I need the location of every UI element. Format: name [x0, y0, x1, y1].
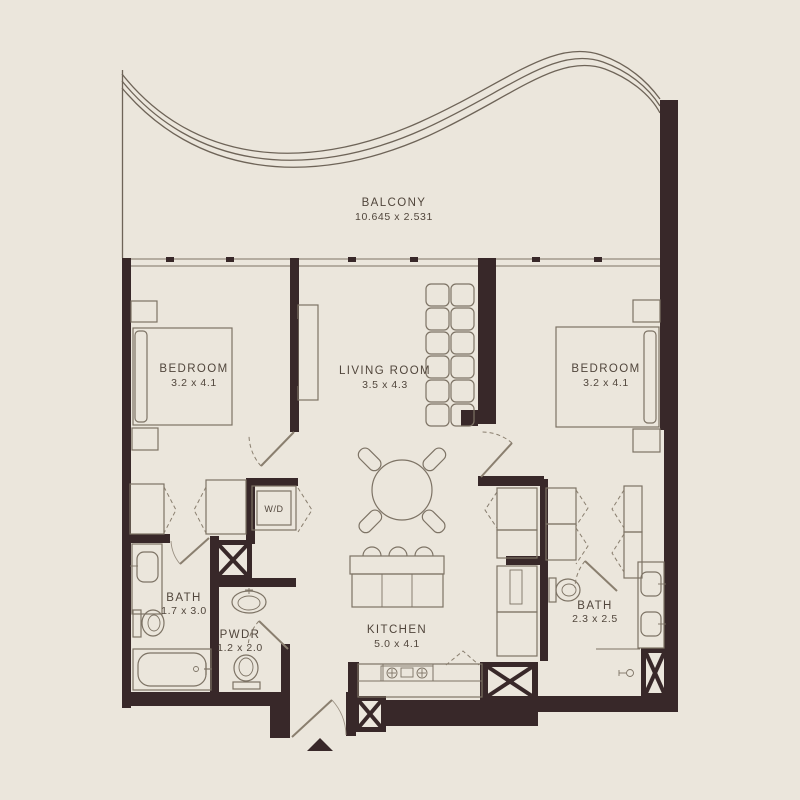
label-powder-room: PWDR 1.2 x 2.0 [217, 629, 263, 654]
wall-bath2-top [506, 556, 548, 565]
wall-entry-left-jamb [270, 692, 290, 738]
svg-text:1.2 x 2.0: 1.2 x 2.0 [217, 642, 263, 654]
svg-text:10.645 x 2.531: 10.645 x 2.531 [355, 211, 433, 223]
shaft-column-corridor1 [214, 540, 252, 580]
svg-text:1.7 x 3.0: 1.7 x 3.0 [161, 605, 207, 617]
svg-text:LIVING ROOM: LIVING ROOM [339, 365, 431, 377]
wall-kitchen-stub [348, 662, 359, 700]
svg-text:5.0 x 4.1: 5.0 x 4.1 [374, 638, 420, 650]
floor-plan-page: W/D [0, 0, 800, 800]
svg-text:3.5 x 4.3: 3.5 x 4.3 [362, 379, 408, 391]
svg-text:KITCHEN: KITCHEN [367, 624, 427, 636]
svg-text:BEDROOM: BEDROOM [571, 363, 640, 375]
label-bath-left: BATH 1.7 x 3.0 [161, 592, 207, 617]
svg-text:BATH: BATH [166, 592, 201, 604]
label-bath-right: BATH 2.3 x 2.5 [572, 600, 618, 625]
shaft-column-kitchen [488, 667, 532, 696]
shaft-column-bath2 [641, 648, 669, 698]
wall-pillar-flare [461, 410, 478, 426]
svg-text:3.2 x 4.1: 3.2 x 4.1 [583, 377, 629, 389]
wall-pwdr-right [281, 644, 290, 692]
svg-text:2.3 x 2.5: 2.3 x 2.5 [572, 613, 618, 625]
shaft-column-entry [354, 696, 386, 732]
svg-text:BATH: BATH [577, 600, 612, 612]
wall-right-upper [660, 100, 678, 430]
svg-text:PWDR: PWDR [220, 629, 261, 641]
wall-corridor2-vertical [540, 479, 548, 661]
plan-background [0, 0, 800, 800]
washer-dryer-label: W/D [264, 504, 283, 514]
wall-bedroom2-corridor [478, 476, 544, 486]
tv-screen [293, 319, 298, 386]
wall-bottom-right [536, 696, 678, 712]
floor-plan: W/D [0, 0, 800, 800]
wall-left [122, 258, 131, 708]
svg-text:BEDROOM: BEDROOM [159, 363, 228, 375]
dining-table-top [372, 460, 432, 520]
wall-wd-left [246, 478, 255, 544]
svg-text:BALCONY: BALCONY [362, 197, 427, 209]
wall-bath1-top [126, 534, 170, 543]
wall-wd-top [246, 478, 298, 486]
svg-text:3.2 x 4.1: 3.2 x 4.1 [171, 377, 217, 389]
wall-bottom-left [122, 692, 282, 706]
wall-living-pillar [478, 258, 496, 424]
